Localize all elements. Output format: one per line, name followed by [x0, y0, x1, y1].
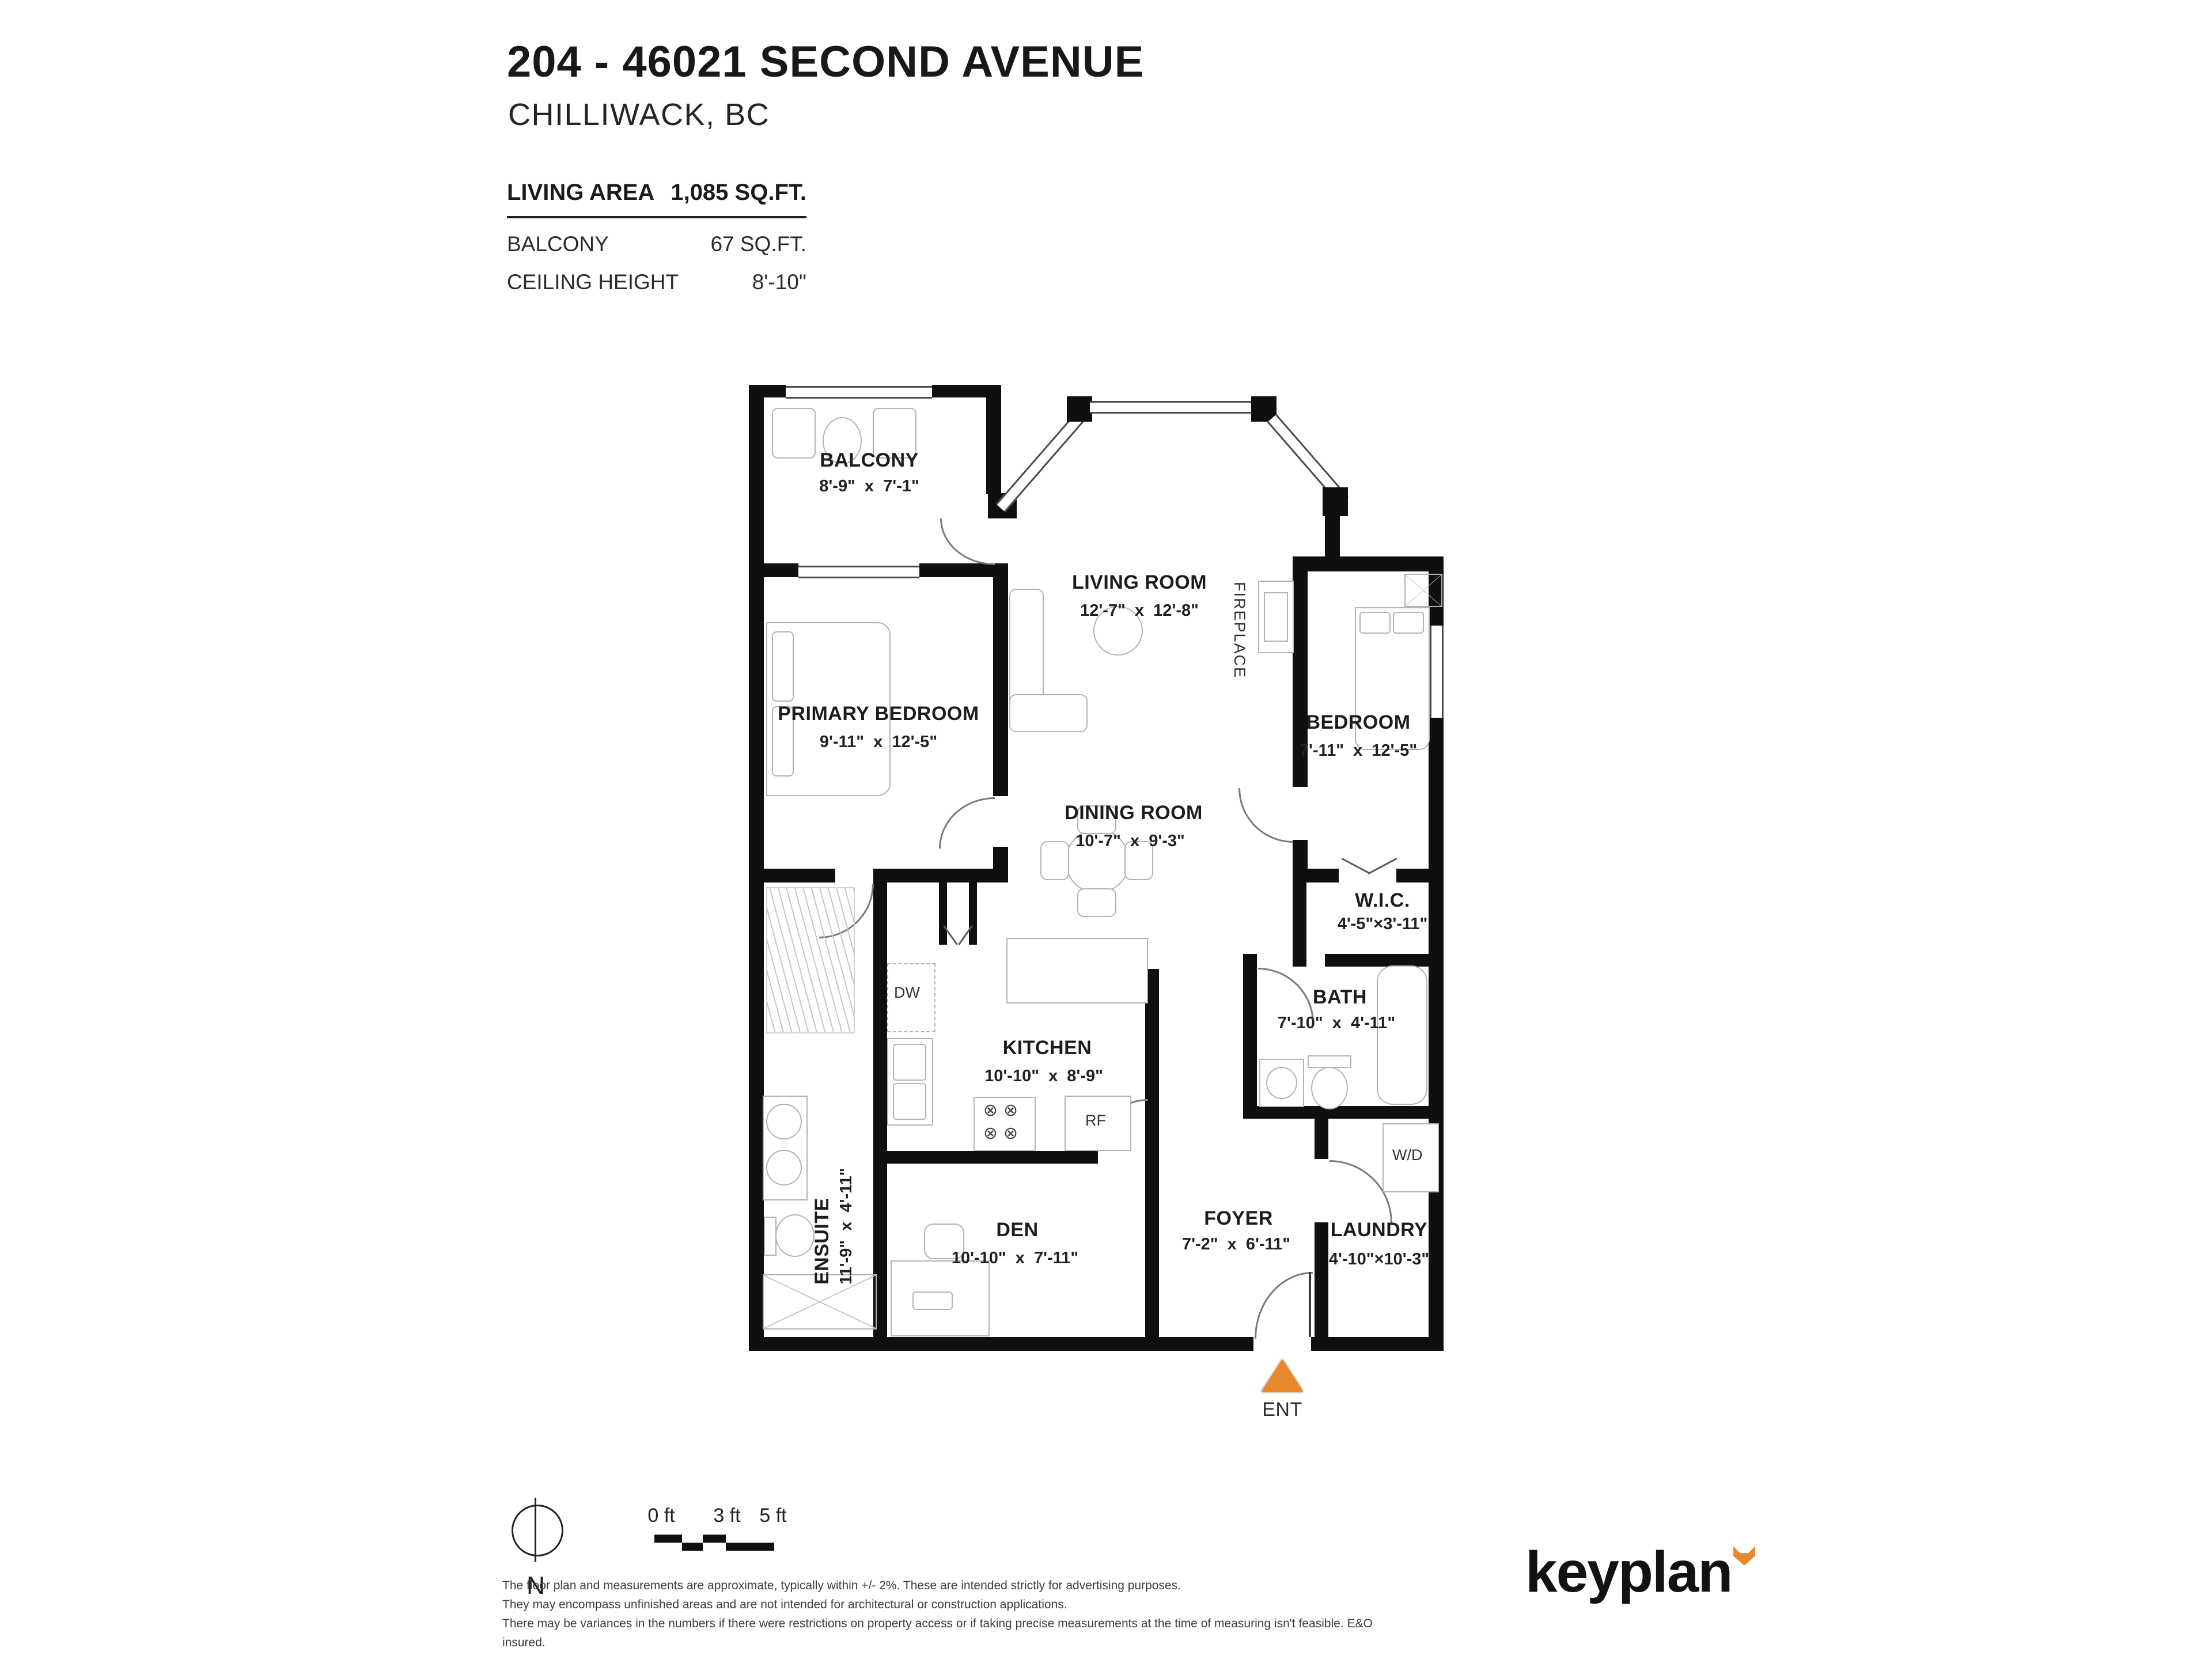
- stat-ceiling-label: CEILING HEIGHT: [507, 270, 679, 294]
- wall: [749, 385, 786, 397]
- primary-bedroom-window: [798, 566, 919, 578]
- bedroom-door-arc: [1238, 788, 1293, 843]
- kitchen-sink: [893, 1083, 926, 1120]
- room-label-primary-bedroom: PRIMARY BEDROOM: [778, 703, 979, 725]
- room-dims-foyer: 7'-2" x 6'-11": [1182, 1235, 1290, 1254]
- room-dims-kitchen: 10'-10" x 8'-9": [984, 1067, 1103, 1086]
- bay-window-left: [996, 412, 1086, 512]
- fireplace-inner: [1264, 592, 1288, 642]
- wall: [1243, 954, 1257, 1119]
- room-dims-living-room: 12'-7" x 12'-8": [1080, 601, 1199, 620]
- room-label-bath: BATH: [1313, 986, 1367, 1009]
- pillow: [1359, 612, 1391, 634]
- stat-living-area-value: 1,085 SQ.FT.: [671, 180, 806, 206]
- room-dims-den: 10'-10" x 7'-11": [952, 1249, 1078, 1268]
- stat-living-area-label: LIVING AREA: [507, 180, 654, 206]
- ensuite-sink: [766, 1150, 802, 1185]
- wall: [919, 563, 1001, 577]
- disclaimer: The floor plan and measurements are appr…: [502, 1576, 1401, 1652]
- keyplan-logo: keyplan: [1525, 1539, 1757, 1605]
- stove: ⊗⊗⊗⊗: [974, 1097, 1036, 1151]
- room-label-den: DEN: [996, 1219, 1038, 1241]
- scale-bar-segment: [654, 1535, 682, 1543]
- scale-bar-segment: [726, 1543, 774, 1551]
- ensuite-toilet-tank: [764, 1217, 777, 1256]
- wic-bifold-mark: [1368, 858, 1397, 874]
- wall: [1311, 1337, 1444, 1351]
- toilet-tank: [1308, 1055, 1351, 1068]
- disclaimer-line-1: The floor plan and measurements are appr…: [502, 1576, 1401, 1595]
- closet-wall: [969, 877, 977, 945]
- entry-label: ENT: [1262, 1399, 1302, 1421]
- stat-balcony-value: 67 SQ.FT.: [710, 232, 806, 256]
- stove-burners: ⊗⊗⊗⊗: [975, 1099, 1032, 1145]
- bay-window-top: [1090, 401, 1255, 414]
- wall: [749, 1337, 1150, 1351]
- balcony-door-arc: [940, 518, 995, 565]
- disclaimer-line-3: There may be variances in the numbers if…: [502, 1614, 1401, 1652]
- bathtub: [1377, 965, 1427, 1105]
- wall: [1429, 718, 1444, 1116]
- pillow: [772, 631, 794, 702]
- stat-ceiling: CEILING HEIGHT 8'-10": [507, 270, 806, 294]
- wall: [993, 563, 1008, 796]
- room-dims-laundry: 4'-10"×10'-3": [1329, 1250, 1429, 1269]
- stat-living-area: LIVING AREA 1,085 SQ.FT.: [507, 180, 806, 218]
- room-label-laundry: LAUNDRY: [1331, 1219, 1427, 1241]
- desk-item: [912, 1291, 953, 1310]
- wall: [1150, 1337, 1253, 1351]
- bedroom-closet-hatch: [1404, 574, 1442, 607]
- entry-arrow-icon: [1262, 1359, 1303, 1392]
- wall: [1293, 556, 1444, 571]
- dining-chair: [1040, 841, 1069, 880]
- wall: [1315, 1119, 1328, 1159]
- room-label-kitchen: KITCHEN: [1003, 1037, 1092, 1059]
- room-dims-primary-bedroom: 9'-11" x 12'-5": [820, 733, 937, 752]
- ensuite-closet-hatch: [766, 887, 855, 1033]
- fox-icon: [1732, 1545, 1757, 1567]
- room-dims-ensuite: 11'-9" x 4'-11": [837, 1112, 856, 1285]
- bedroom-window: [1430, 626, 1444, 718]
- fireplace-label: FIREPLACE: [1230, 582, 1248, 679]
- stat-balcony-label: BALCONY: [507, 232, 609, 256]
- wall: [1396, 869, 1444, 882]
- scale-tick-5: 5 ft: [750, 1505, 796, 1527]
- wall: [749, 570, 764, 1337]
- scale-tick-0: 0 ft: [638, 1505, 684, 1527]
- room-label-foyer: FOYER: [1204, 1207, 1273, 1230]
- wall: [1243, 1106, 1444, 1119]
- page-subtitle: CHILLIWACK, BC: [508, 97, 770, 132]
- balcony-chair: [772, 408, 816, 459]
- wall: [873, 869, 997, 882]
- room-dims-dining-room: 10'-7" x 9'-3": [1075, 832, 1185, 851]
- wall: [986, 385, 1001, 494]
- room-label-living-room: LIVING ROOM: [1072, 571, 1207, 594]
- room-dims-bedroom: 7'-11" x 12'-5": [1300, 741, 1417, 760]
- balcony-window: [786, 386, 932, 399]
- room-dims-balcony: 8'-9" x 7'-1": [819, 477, 919, 496]
- floor-plan: FIREPLACE: [749, 380, 1452, 1446]
- entry-door-arc: [1255, 1272, 1313, 1339]
- scale-bar-segment: [703, 1535, 726, 1543]
- wall: [749, 385, 764, 570]
- kitchen-sink: [893, 1044, 926, 1081]
- closet-wall: [939, 877, 947, 945]
- room-label-bedroom: BEDROOM: [1306, 711, 1410, 734]
- bath-sink: [1266, 1067, 1297, 1099]
- compass-needle: [535, 1498, 536, 1562]
- stat-balcony: BALCONY 67 SQ.FT.: [507, 232, 806, 256]
- washer-dryer-label: W/D: [1392, 1146, 1422, 1164]
- keyplan-logo-text: keyplan: [1525, 1540, 1732, 1604]
- wall: [1293, 869, 1306, 967]
- toilet-bowl: [1311, 1067, 1348, 1109]
- wall: [1315, 1222, 1328, 1351]
- compass: [512, 1505, 563, 1556]
- stat-ceiling-value: 8'-10": [752, 270, 806, 294]
- room-label-balcony: BALCONY: [820, 449, 919, 472]
- wall-bay-corner: [1067, 396, 1092, 422]
- pillow: [1393, 612, 1424, 634]
- dining-chair: [1077, 888, 1116, 917]
- wall: [1145, 969, 1159, 1351]
- room-dims-wic: 4'-5"×3'-11": [1338, 915, 1428, 934]
- room-label-dining-room: DINING ROOM: [1065, 802, 1203, 824]
- stats-table: LIVING AREA 1,085 SQ.FT. BALCONY 67 SQ.F…: [507, 180, 806, 294]
- scale-tick-3: 3 ft: [704, 1505, 750, 1527]
- room-label-wic: W.I.C.: [1355, 889, 1410, 912]
- refrigerator-label: RF: [1085, 1112, 1106, 1130]
- sofa-chaise: [1009, 694, 1088, 732]
- floor-plan-page: { "header": { "title": "204 - 46021 SECO…: [0, 0, 2212, 1659]
- entry-door-leaf: [1309, 1272, 1311, 1337]
- room-label-ensuite-block: ENSUITE 11'-9" x 4'-11": [811, 1112, 856, 1285]
- page-title: 204 - 46021 SECOND AVENUE: [507, 37, 1144, 87]
- wall: [873, 1151, 1098, 1164]
- wic-bifold-mark: [1342, 858, 1371, 874]
- primary-door-arc: [939, 797, 995, 849]
- dishwasher-label: DW: [894, 984, 920, 1002]
- room-dims-bath: 7'-10" x 4'-11": [1278, 1014, 1395, 1033]
- ensuite-toilet-bowl: [775, 1214, 815, 1257]
- ensuite-sink: [766, 1104, 802, 1139]
- room-label-ensuite: ENSUITE: [811, 1112, 834, 1285]
- kitchen-island: [1006, 938, 1148, 1003]
- wall: [1325, 954, 1444, 967]
- disclaimer-line-2: They may encompass unfinished areas and …: [502, 1595, 1401, 1614]
- scale-bar-segment: [682, 1543, 703, 1551]
